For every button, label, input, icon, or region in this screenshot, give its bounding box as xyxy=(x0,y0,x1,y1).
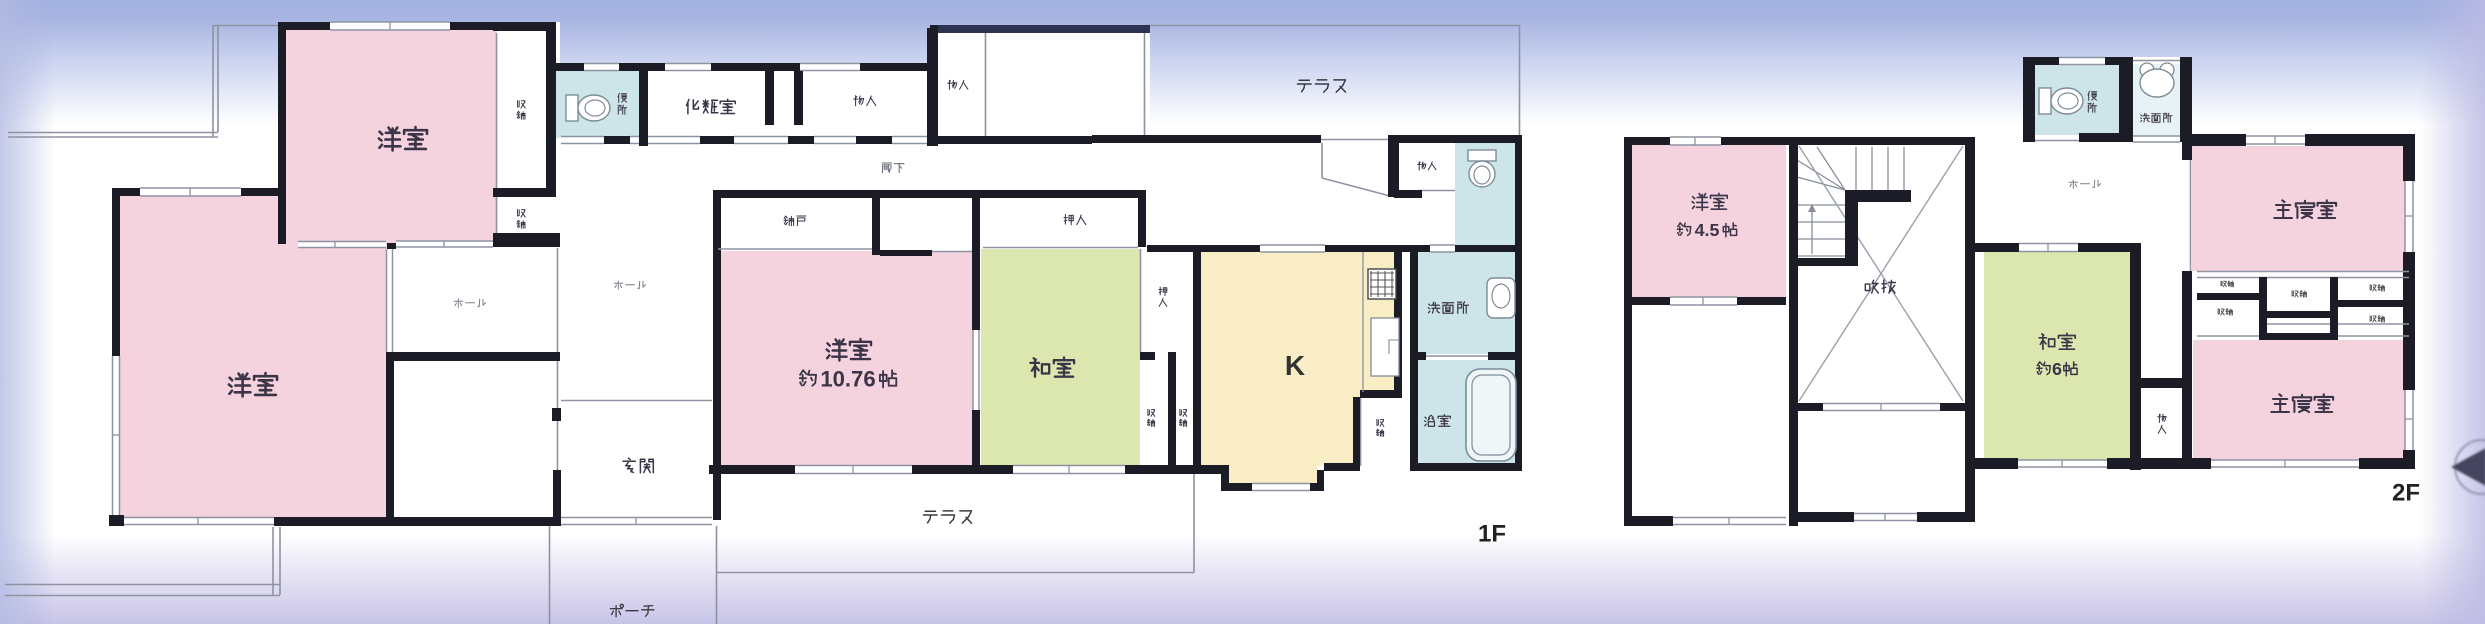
svg-text:1F: 1F xyxy=(1478,520,1506,547)
svg-text:K: K xyxy=(1285,350,1305,381)
svg-text:6: 6 xyxy=(2052,359,2062,379)
svg-text:10.76: 10.76 xyxy=(820,367,875,392)
svg-text:2F: 2F xyxy=(2392,479,2420,506)
svg-text:4.5: 4.5 xyxy=(1695,220,1720,240)
